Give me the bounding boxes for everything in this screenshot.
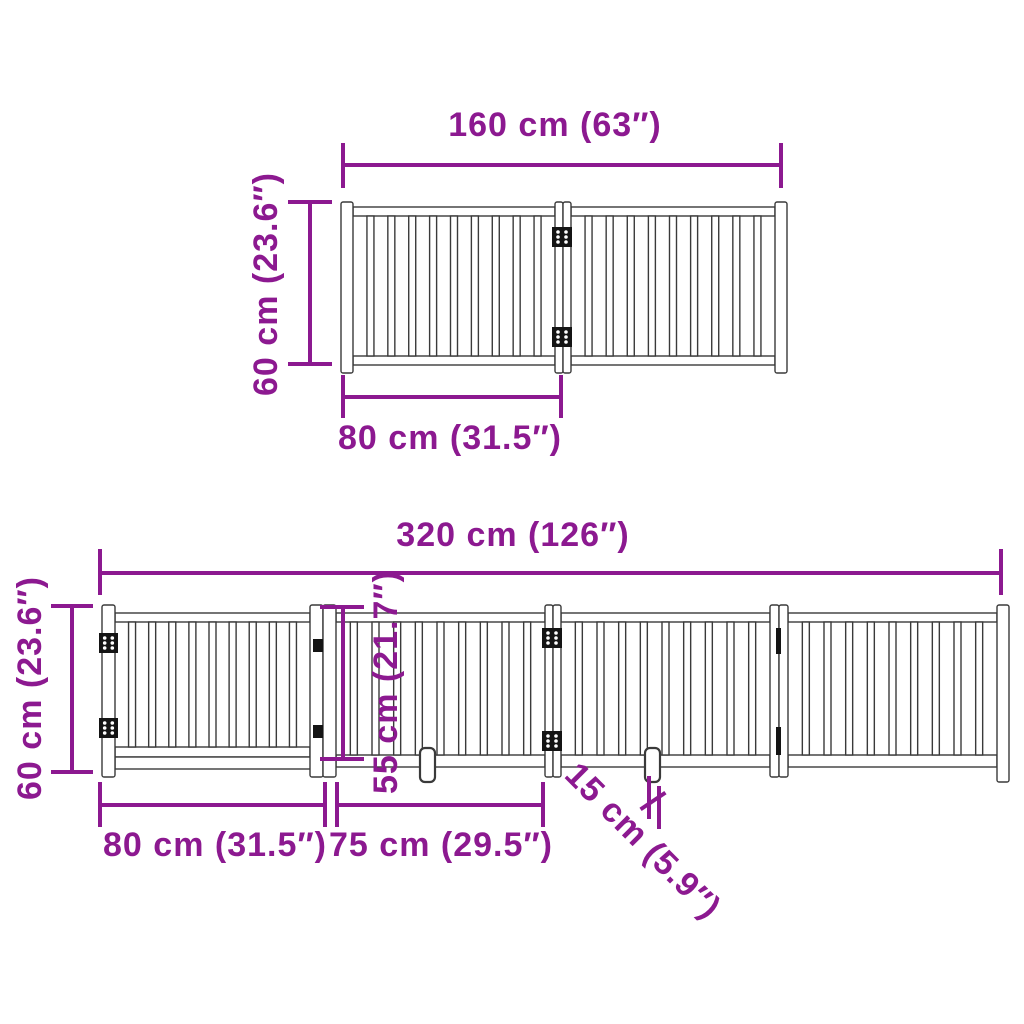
top-panel-width-label: 80 cm (31.5″)	[290, 416, 610, 460]
dimension-line	[100, 803, 326, 807]
fence-illustrations	[0, 0, 1024, 1024]
dimension-line	[70, 606, 74, 774]
bottom-inner-height-label: 55 cm (21.7″)	[364, 532, 408, 832]
dimension-tick	[51, 770, 93, 774]
dimension-tick	[335, 782, 339, 827]
dimension-tick	[320, 757, 364, 761]
dimension-tick	[647, 776, 651, 819]
bottom-panel-width-label: 75 cm (29.5″)	[281, 823, 601, 867]
dimension-line	[341, 607, 345, 760]
dimension-tick	[341, 375, 345, 418]
dimension-line	[343, 163, 783, 167]
dimension-tick	[541, 782, 545, 827]
dimension-tick	[779, 143, 783, 188]
dimension-tick	[341, 143, 345, 188]
dimension-tick	[98, 549, 102, 595]
top-height-label: 60 cm (23.6″)	[244, 134, 288, 434]
bottom-height-label: 60 cm (23.6″)	[8, 538, 52, 838]
dimension-line	[343, 395, 562, 399]
dimension-tick	[98, 782, 102, 827]
dimension-tick	[323, 782, 327, 827]
product-dimension-diagram: 160 cm (63″) 60 cm (23.6″) 80 cm (31.5″)…	[0, 0, 1024, 1024]
dimension-tick	[559, 375, 563, 418]
top-total-width-label: 160 cm (63″)	[355, 103, 755, 147]
dimension-tick	[51, 604, 93, 608]
dimension-tick	[288, 362, 332, 366]
dimension-line	[308, 202, 312, 366]
dimension-tick	[999, 549, 1003, 595]
dimension-tick	[288, 200, 332, 204]
dimension-line	[100, 571, 1002, 575]
dimension-line	[337, 803, 544, 807]
dimension-tick	[320, 605, 364, 609]
